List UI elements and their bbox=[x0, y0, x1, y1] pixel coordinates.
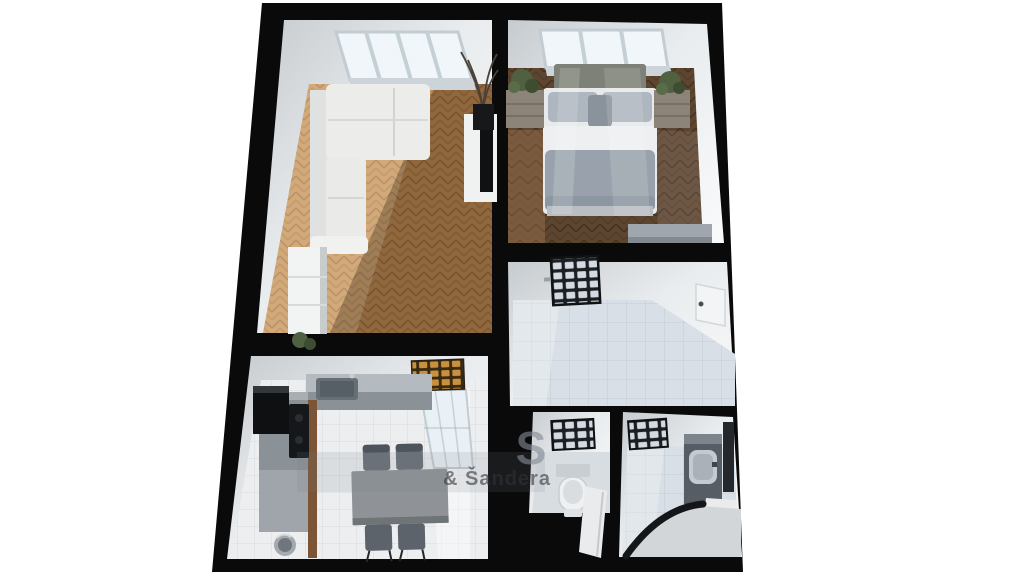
sofa-chaise bbox=[326, 84, 430, 160]
toilet-tank bbox=[556, 464, 590, 477]
basin-faucet bbox=[712, 462, 717, 467]
floor-plan-3d-render: S & Šandera bbox=[0, 0, 1024, 576]
watermark-text: & Šandera bbox=[443, 466, 551, 490]
trash-bin bbox=[274, 534, 296, 556]
sofa-back-left bbox=[310, 90, 328, 240]
plant-pot bbox=[473, 104, 494, 130]
watermark-letter: S bbox=[516, 422, 547, 474]
sideboard bbox=[288, 247, 327, 334]
toilet-bowl bbox=[563, 480, 583, 504]
washbasin-bowl bbox=[693, 454, 713, 480]
door-handle bbox=[699, 302, 704, 307]
floor-plan-screenshot: S & Šandera bbox=[0, 0, 1024, 576]
faucet bbox=[350, 374, 355, 379]
toilet-base bbox=[564, 509, 582, 517]
nightstand-left bbox=[506, 90, 544, 128]
room-bathroom-small bbox=[619, 412, 742, 557]
glass-block-window bbox=[628, 419, 668, 450]
tv bbox=[480, 122, 493, 192]
wall-cabinet bbox=[253, 386, 289, 434]
nightstand-right bbox=[654, 90, 690, 128]
skylight-window bbox=[336, 32, 476, 90]
mirror bbox=[723, 422, 734, 492]
glass-block-window bbox=[551, 419, 594, 450]
window-handle bbox=[544, 277, 551, 281]
sideboard-side bbox=[320, 247, 327, 334]
bathroom-door bbox=[696, 284, 725, 326]
sink-basin bbox=[320, 381, 354, 397]
room-living-room bbox=[257, 20, 498, 350]
bedroom-warm-light bbox=[508, 130, 545, 243]
vanity bbox=[684, 434, 722, 504]
cooktop bbox=[289, 404, 309, 458]
bench bbox=[628, 224, 712, 243]
counter-with-sink bbox=[306, 374, 432, 411]
room-bedroom bbox=[506, 20, 724, 243]
window-pane bbox=[540, 30, 668, 68]
room-bathroom-large bbox=[508, 256, 735, 406]
